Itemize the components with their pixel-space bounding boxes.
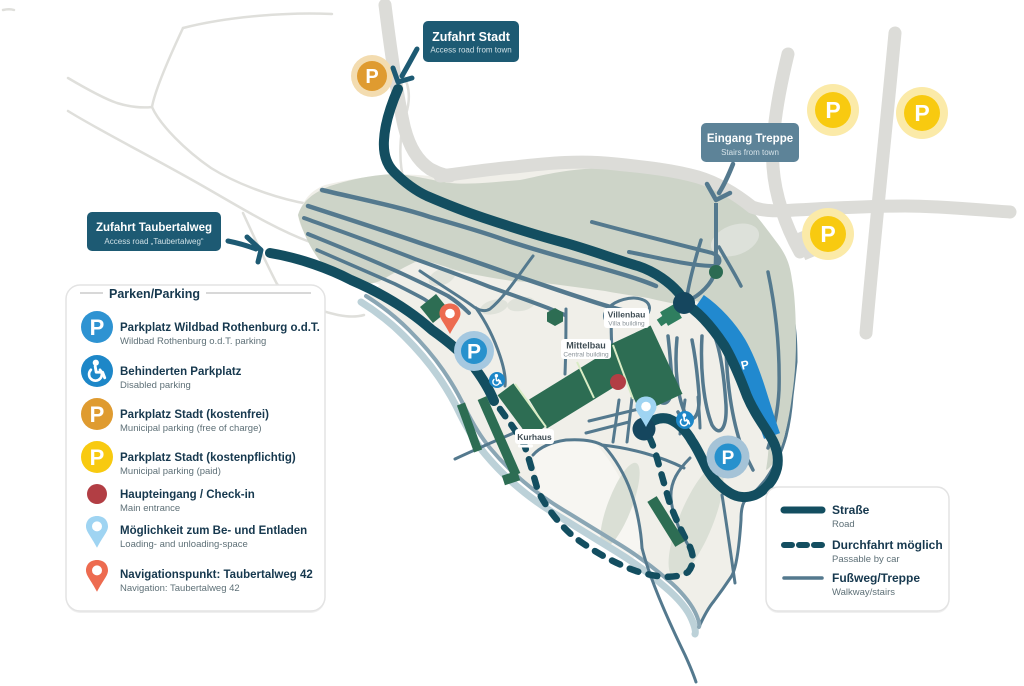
svg-text:Navigationspunkt: Taubertalweg: Navigationspunkt: Taubertalweg 42 [120,569,313,581]
svg-text:P: P [820,221,835,247]
svg-text:Walkway/stairs: Walkway/stairs [832,587,895,598]
svg-text:Loading- and unloading-space: Loading- and unloading-space [120,539,248,550]
svg-text:P: P [90,315,105,340]
svg-text:Passable by car: Passable by car [832,554,900,565]
svg-text:Wildbad Rothenburg o.d.T. park: Wildbad Rothenburg o.d.T. parking [120,336,266,347]
svg-text:Zufahrt Stadt: Zufahrt Stadt [432,30,511,44]
svg-text:Mittelbau: Mittelbau [566,341,606,351]
svg-text:Straße: Straße [832,503,870,517]
svg-text:Access road „Taubertalweg“: Access road „Taubertalweg“ [104,237,203,246]
svg-text:Parken/Parking: Parken/Parking [109,287,200,301]
svg-text:Kurhaus: Kurhaus [517,432,552,442]
svg-text:Parkplatz Stadt (kostenfrei): Parkplatz Stadt (kostenfrei) [120,409,269,421]
svg-text:Durchfahrt möglich: Durchfahrt möglich [832,538,943,552]
svg-text:Disabled parking: Disabled parking [120,380,191,391]
svg-text:Fußweg/Treppe: Fußweg/Treppe [832,571,920,585]
svg-text:Municipal parking (paid): Municipal parking (paid) [120,466,221,477]
svg-text:Central building: Central building [563,352,609,359]
svg-text:P: P [825,97,840,123]
svg-text:Navigation: Taubertalweg 42: Navigation: Taubertalweg 42 [120,583,240,594]
svg-text:Road: Road [832,519,855,530]
svg-text:Haupteingang / Check-in: Haupteingang / Check-in [120,489,255,501]
svg-text:P: P [90,402,105,427]
svg-text:P: P [90,445,105,470]
svg-text:Villenbau: Villenbau [608,310,646,320]
svg-text:Villa building: Villa building [608,321,645,328]
svg-text:Parkplatz Wildbad Rothenburg o: Parkplatz Wildbad Rothenburg o.d.T. [120,322,320,334]
svg-text:P: P [722,448,735,469]
svg-text:P: P [467,341,481,364]
svg-text:P: P [365,66,378,88]
svg-text:Parkplatz Stadt (kostenpflicht: Parkplatz Stadt (kostenpflichtig) [120,452,296,464]
svg-text:Main entrance: Main entrance [120,503,180,514]
svg-text:Zufahrt Taubertalweg: Zufahrt Taubertalweg [96,222,212,234]
svg-text:Stairs from town: Stairs from town [721,148,779,157]
svg-text:Municipal parking (free of cha: Municipal parking (free of charge) [120,423,262,434]
svg-text:Möglichkeit zum Be- und Entlad: Möglichkeit zum Be- und Entladen [120,525,307,537]
svg-text:Access road from town: Access road from town [430,46,511,55]
svg-text:P: P [914,100,929,126]
svg-text:Behinderten Parkplatz: Behinderten Parkplatz [120,366,242,378]
svg-text:Eingang Treppe: Eingang Treppe [707,133,793,145]
